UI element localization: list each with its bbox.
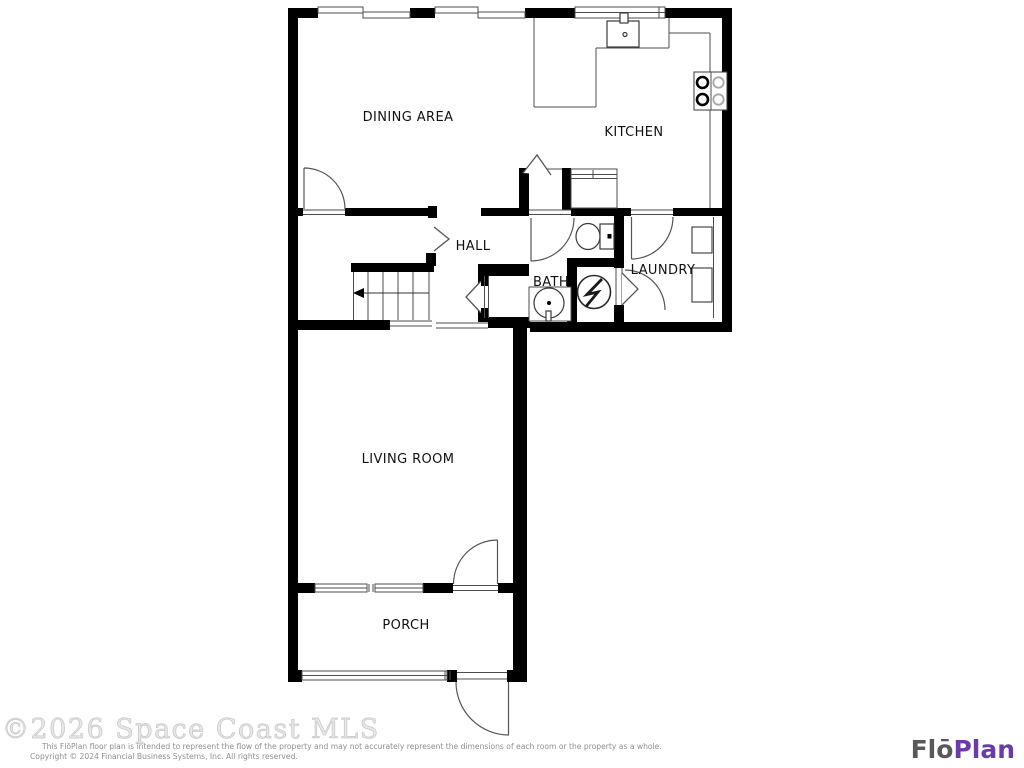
toilet	[576, 224, 614, 250]
room-label-kitchen: KITCHEN	[604, 125, 663, 140]
toilet-flush-dot	[608, 234, 612, 239]
room-label-bath: BATH	[533, 275, 569, 290]
sink-drain	[623, 33, 627, 37]
toilet-bowl	[576, 224, 600, 250]
sink-faucet	[620, 13, 628, 23]
vanity-faucet	[546, 311, 551, 321]
toilet-tank	[600, 224, 614, 249]
door-living-room	[454, 540, 498, 584]
room-label-porch: PORCH	[382, 618, 429, 633]
closet-shelf	[571, 169, 617, 208]
room-label-living-room: LIVING ROOM	[362, 452, 455, 467]
water-heater	[578, 276, 611, 309]
cooktop	[694, 72, 727, 110]
door-laundry-top	[632, 217, 674, 259]
window-mullions	[302, 7, 665, 680]
door-porch-exterior	[456, 682, 509, 735]
staircase	[353, 272, 429, 320]
floor-plan-page: DINING AREA KITCHEN HALL BATH LAUNDRY LI…	[0, 0, 1024, 768]
floplan-logo-plan: Plan	[953, 735, 1015, 764]
mls-watermark: ©2026 Space Coast MLS	[2, 714, 380, 745]
stair-treads	[354, 272, 430, 320]
floplan-logo-flo: Flō	[911, 735, 954, 764]
room-label-laundry: LAUNDRY	[631, 263, 696, 278]
door-bath	[531, 218, 574, 261]
room-label-hall: HALL	[456, 239, 491, 254]
floor-plan-drawing: DINING AREA KITCHEN HALL BATH LAUNDRY LI…	[0, 0, 1024, 768]
disclaimer-line-2: Copyright © 2024 Financial Business Syst…	[30, 752, 298, 761]
vanity-drain	[547, 301, 551, 305]
disclaimer-line-1: This FlōPlan floor plan is intended to r…	[42, 742, 662, 751]
closet-shelf-lines	[571, 170, 617, 179]
washer	[692, 227, 712, 253]
door-dining	[304, 168, 345, 209]
stair-direction-arrow	[353, 288, 364, 298]
walls	[288, 8, 732, 682]
room-label-dining-area: DINING AREA	[363, 110, 454, 125]
windows	[302, 7, 665, 680]
floplan-logo: FlōPlan	[911, 735, 1015, 764]
bathroom-sink	[529, 287, 571, 321]
